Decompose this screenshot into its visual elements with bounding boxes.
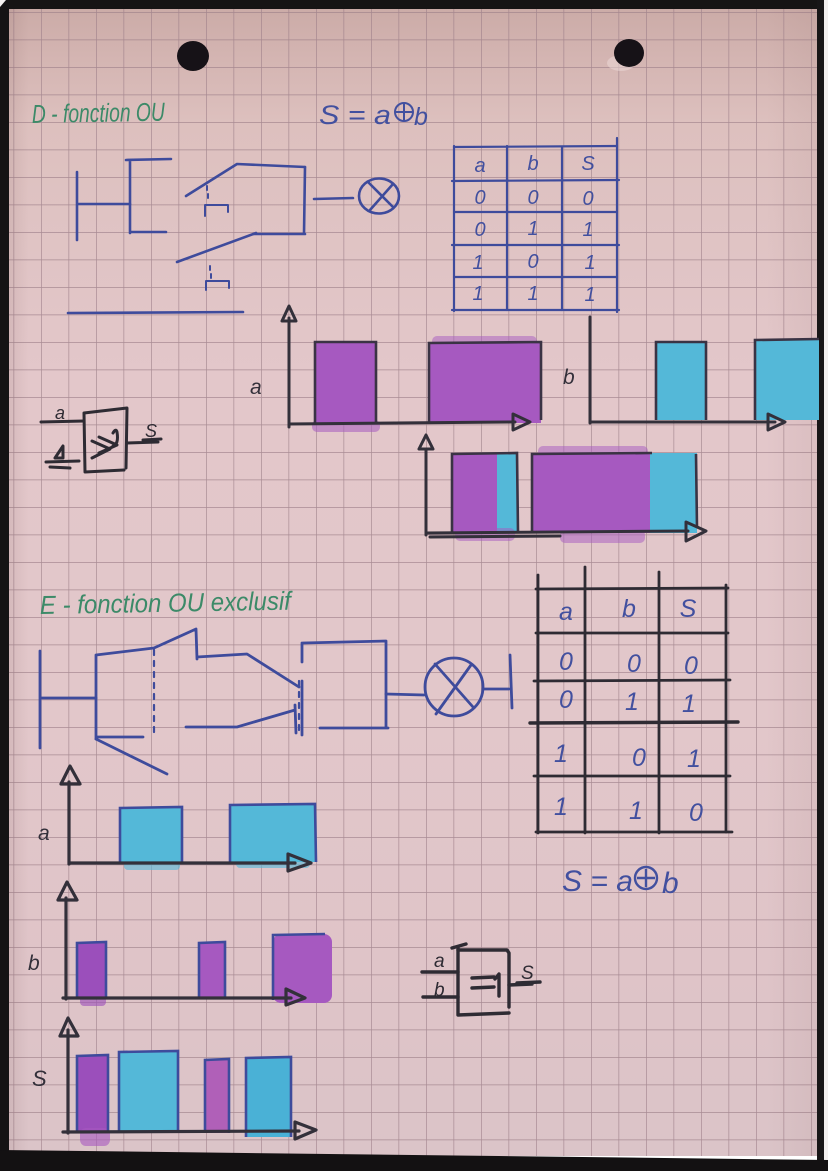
svg-text:1: 1: [472, 283, 483, 305]
svg-text:1: 1: [625, 688, 639, 716]
svg-text:0: 0: [689, 799, 703, 827]
svg-text:1: 1: [527, 283, 538, 305]
svg-text:b: b: [563, 366, 575, 389]
svg-text:0: 0: [474, 187, 485, 209]
svg-text:S: S: [32, 1066, 47, 1091]
svg-text:0: 0: [684, 652, 698, 680]
svg-text:1: 1: [584, 252, 595, 274]
svg-text:0: 0: [582, 188, 593, 210]
svg-text:1: 1: [687, 745, 701, 773]
svg-text:1: 1: [554, 793, 568, 821]
svg-text:0: 0: [627, 650, 641, 678]
svg-text:0: 0: [527, 251, 538, 273]
svg-text:1: 1: [629, 797, 643, 825]
svg-text:S = a: S = a: [562, 865, 633, 898]
svg-text:S: S: [581, 153, 595, 175]
svg-text:0: 0: [527, 187, 538, 209]
svg-text:S: S: [521, 963, 534, 984]
svg-text:a: a: [434, 951, 445, 972]
svg-text:a: a: [250, 376, 262, 399]
svg-text:1: 1: [582, 219, 593, 241]
svg-text:D - fonction OU: D - fonction OU: [32, 97, 166, 129]
svg-text:1: 1: [472, 252, 483, 274]
svg-text:a: a: [559, 598, 573, 626]
svg-text:1: 1: [682, 690, 696, 718]
svg-text:b: b: [622, 595, 636, 623]
svg-text:E - fonction OU exclusif: E - fonction OU exclusif: [40, 586, 294, 620]
svg-text:a: a: [38, 822, 50, 845]
svg-text:1: 1: [584, 284, 595, 306]
svg-text:0: 0: [632, 744, 646, 772]
svg-text:S: S: [680, 595, 697, 623]
svg-text:0: 0: [474, 219, 485, 241]
svg-text:a: a: [55, 403, 65, 423]
svg-text:b: b: [434, 980, 445, 1001]
svg-text:0: 0: [559, 648, 573, 676]
svg-text:b: b: [414, 103, 428, 131]
svg-text:1: 1: [554, 740, 568, 768]
svg-text:a: a: [474, 155, 485, 177]
svg-text:b: b: [28, 952, 40, 975]
svg-text:0: 0: [559, 686, 573, 714]
svg-text:b: b: [527, 153, 538, 175]
svg-text:S = a: S = a: [319, 100, 391, 130]
svg-text:b: b: [662, 867, 679, 900]
svg-text:S: S: [145, 421, 157, 441]
svg-text:1: 1: [527, 218, 538, 240]
